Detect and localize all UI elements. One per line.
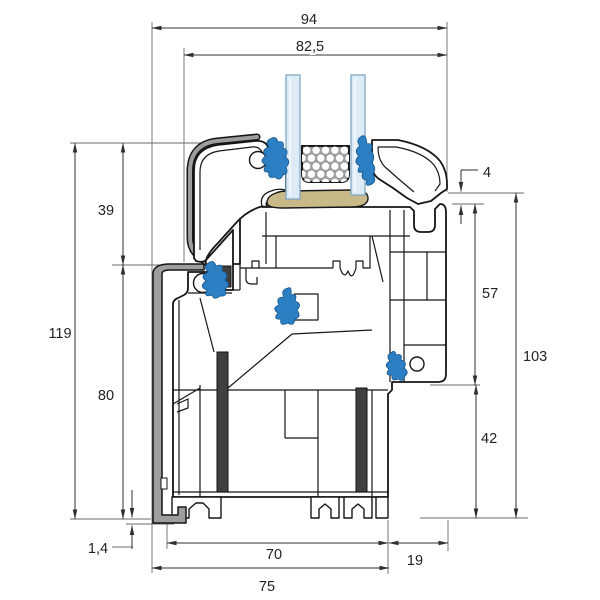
technical-drawing-page: 94 82,5 39 119 80 1,4 4 57 103 42 70 19 … xyxy=(0,0,600,600)
dim-19-label: 19 xyxy=(407,553,423,569)
sash-shoulder xyxy=(372,140,447,204)
dim-119-label: 119 xyxy=(48,326,71,342)
dim-14-label: 1,4 xyxy=(88,541,108,557)
flange-clip-notch xyxy=(161,478,167,489)
frame-foot-2 xyxy=(311,497,339,518)
dim-42-label: 42 xyxy=(481,431,497,447)
dim-825-label: 82,5 xyxy=(296,39,324,55)
steel-bar-right xyxy=(356,388,367,492)
spacer-honeycomb xyxy=(302,146,349,182)
dim-57-label: 57 xyxy=(482,286,498,302)
steel-bar-left xyxy=(217,352,228,492)
shoulder-body xyxy=(372,140,447,204)
dim-103-label: 103 xyxy=(523,349,547,365)
profile-cross-section-drawing: 94 82,5 39 119 80 1,4 4 57 103 42 70 19 … xyxy=(0,0,600,600)
frame-foot-4 xyxy=(376,497,388,518)
dim-4-label: 4 xyxy=(483,165,491,181)
dim-70-label: 70 xyxy=(266,547,282,563)
dim-39-label: 39 xyxy=(98,203,114,219)
dim-80-label: 80 xyxy=(98,388,114,404)
dim-94-label: 94 xyxy=(301,12,317,28)
dim-75-label: 75 xyxy=(259,579,275,595)
frame-screw-channel-right xyxy=(410,357,424,371)
glass-pane-inner xyxy=(286,75,300,199)
frame-foot-3 xyxy=(344,497,372,518)
